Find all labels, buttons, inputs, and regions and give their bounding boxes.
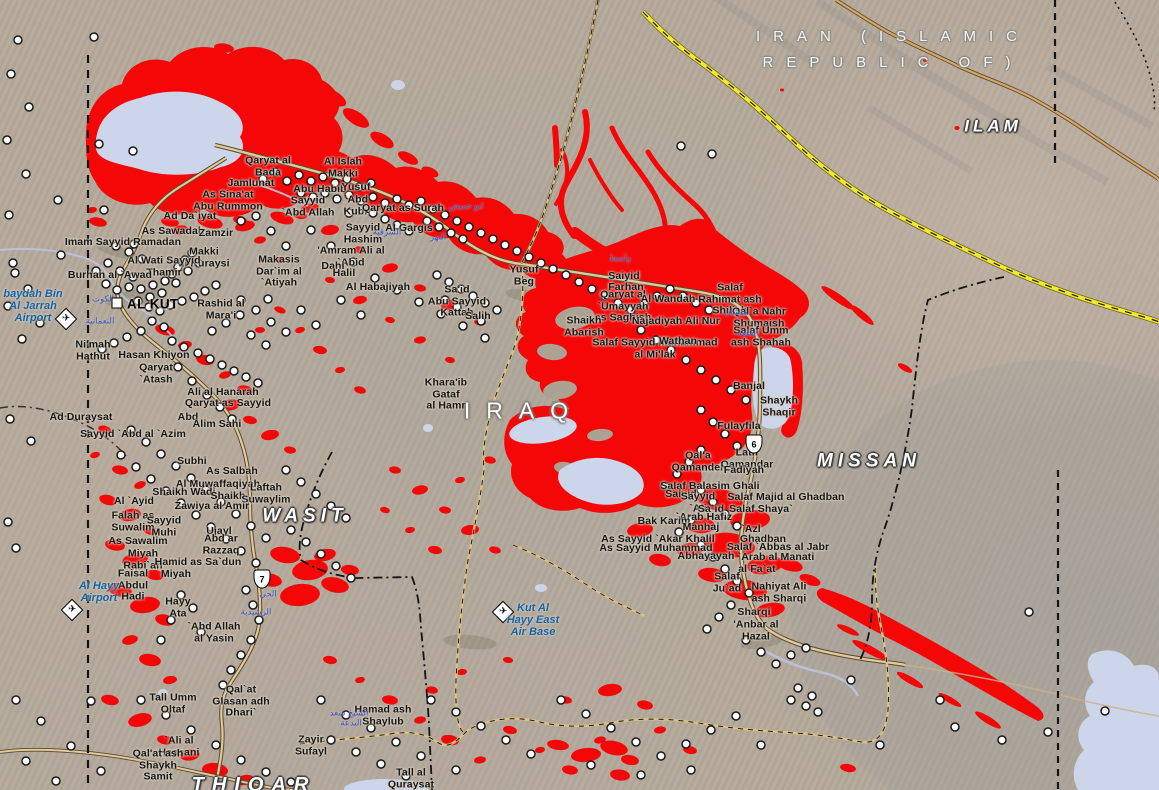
flood-patch — [396, 148, 420, 167]
village-point[interactable] — [682, 740, 690, 748]
settlement-label: Salaf Sayyid Muhammad al Mi'lak — [592, 337, 717, 360]
village-point[interactable] — [1025, 608, 1033, 616]
flood-patch — [88, 216, 107, 229]
village-point[interactable] — [237, 217, 245, 225]
flood-patch — [294, 326, 305, 334]
flood-patch — [502, 725, 517, 736]
village-point[interactable] — [137, 285, 145, 293]
village-point[interactable] — [453, 217, 461, 225]
village-point[interactable] — [787, 696, 795, 704]
country-label-iraq: IRAQ — [464, 398, 584, 423]
flood-patch — [955, 126, 960, 130]
flood-patch — [561, 764, 578, 775]
settlement-label: Fadiyah — [724, 465, 764, 477]
flood-patch — [780, 89, 784, 92]
settlement-label: Rashid al Mara'i — [197, 298, 245, 321]
country-label-iran-line2: REPUBLIC OF) — [762, 55, 1023, 72]
village-point[interactable] — [477, 229, 485, 237]
village-point[interactable] — [435, 223, 443, 231]
village-point[interactable] — [459, 235, 467, 243]
village-point[interactable] — [312, 321, 320, 329]
settlement-label: Imam Sayyid Ramadan — [65, 237, 181, 249]
village-point[interactable] — [264, 295, 272, 303]
flood-patch — [483, 456, 496, 465]
village-point[interactable] — [501, 241, 509, 249]
village-point[interactable] — [415, 298, 423, 306]
settlement-label: Sayyid `Abd al `Azim — [80, 429, 186, 441]
village-point[interactable] — [22, 757, 30, 765]
alkut-city-marker[interactable] — [112, 298, 123, 309]
village-point[interactable] — [772, 660, 780, 668]
village-point[interactable] — [575, 278, 583, 286]
village-point[interactable] — [557, 696, 565, 704]
village-point[interactable] — [757, 741, 765, 749]
flood-patch — [848, 303, 875, 328]
region-label-ilam: ILAM — [964, 118, 1022, 137]
flood-patch — [340, 104, 372, 131]
flood-patch — [535, 746, 546, 754]
flood-patch — [405, 526, 416, 534]
airplane-glyph: ✈ — [62, 314, 70, 324]
settlement-label: Ni'mah Hathut — [75, 339, 110, 362]
village-point[interactable] — [267, 227, 275, 235]
country-label-iran-line1: IRAN (ISLAMIC — [756, 29, 1030, 46]
flood-patch — [414, 336, 427, 345]
village-point[interactable] — [317, 550, 325, 558]
alkut-city-label: AL KUT — [127, 297, 179, 312]
village-point[interactable] — [357, 311, 365, 319]
settlement-label: Burhan al `Awad — [68, 270, 152, 282]
village-point[interactable] — [113, 286, 121, 294]
flood-patch — [354, 676, 365, 684]
settlement-label: Ad Duraysat — [50, 412, 113, 424]
arabic-label: النعمانية — [86, 316, 115, 325]
settlement-label: Qal'at ash Shaykh Samit — [133, 749, 184, 784]
flood-patch — [121, 634, 139, 647]
village-point[interactable] — [708, 150, 716, 158]
track-south — [456, 266, 523, 732]
flood-patch — [413, 716, 426, 725]
village-point[interactable] — [37, 717, 45, 725]
village-point[interactable] — [12, 696, 20, 704]
settlement-label: Subhi — [177, 456, 207, 468]
settlement-label: Wathan — [659, 336, 697, 348]
village-point[interactable] — [417, 752, 425, 760]
region-label-thiqar: THIQAR — [192, 774, 317, 790]
settlement-label: Miyah — [161, 569, 191, 581]
village-point[interactable] — [212, 741, 220, 749]
village-point[interactable] — [90, 33, 98, 41]
village-point[interactable] — [562, 271, 570, 279]
flood-patch — [636, 699, 653, 711]
village-point[interactable] — [513, 247, 521, 255]
village-point[interactable] — [262, 534, 270, 542]
village-point[interactable] — [137, 696, 145, 704]
settlement-label: `Arab al Manati — [738, 552, 815, 564]
boundary-corner-dotted — [1115, 2, 1155, 112]
settlement-label: Zayir Sufayl — [295, 734, 327, 757]
village-point[interactable] — [97, 767, 105, 775]
village-point[interactable] — [447, 229, 455, 237]
flood-patch — [242, 415, 257, 426]
flood-patch — [445, 356, 456, 364]
village-point[interactable] — [247, 522, 255, 530]
settlement-label: As Sina'at Abu Rummon — [193, 189, 263, 212]
settlement-label: 'Anbar al Hazal — [733, 619, 778, 642]
village-point[interactable] — [208, 327, 216, 335]
flood-patch — [352, 295, 367, 305]
village-point[interactable] — [297, 306, 305, 314]
village-point[interactable] — [427, 696, 435, 704]
village-point[interactable] — [247, 331, 255, 339]
flood-patch — [570, 746, 601, 763]
flood-patch — [654, 726, 667, 735]
arabic-label: واسط — [609, 253, 631, 262]
settlement-label: Sayyid `Abd Allah — [281, 195, 334, 218]
settlement-label: Al `Ayid — [114, 496, 154, 508]
settlement-label: Shaykh Shaqir — [760, 395, 798, 418]
flood-patch — [839, 763, 856, 774]
village-point[interactable] — [687, 766, 695, 774]
village-point[interactable] — [206, 355, 214, 363]
village-point[interactable] — [998, 736, 1006, 744]
settlement-label: Salaf Majid al Ghadban — [727, 492, 844, 504]
village-point[interactable] — [129, 147, 137, 155]
flood-patch — [379, 506, 390, 514]
arabic-label: الشرقية — [373, 227, 401, 236]
village-point[interactable] — [312, 490, 320, 498]
settlement-label: Abd ar Razzaq — [203, 533, 240, 556]
village-point[interactable] — [237, 756, 245, 764]
village-point[interactable] — [160, 323, 168, 331]
flood-patch — [284, 446, 297, 455]
village-point[interactable] — [794, 684, 802, 692]
village-point[interactable] — [187, 726, 195, 734]
village-point[interactable] — [123, 333, 131, 341]
village-point[interactable] — [262, 341, 270, 349]
flood-patch — [503, 656, 514, 663]
village-point[interactable] — [242, 373, 250, 381]
flood-patch — [414, 284, 427, 293]
village-point[interactable] — [157, 636, 165, 644]
airport-label: Kut Al Hayy East Air Base — [507, 602, 560, 638]
village-point[interactable] — [607, 724, 615, 732]
flood-patch — [368, 128, 397, 151]
village-point[interactable] — [157, 450, 165, 458]
arabic-label: ابو حميض — [449, 201, 484, 210]
settlement-label: Hamid as Sa`dun — [155, 557, 242, 569]
flood-patch — [411, 484, 429, 496]
arabic-label: الحي — [259, 589, 277, 598]
village-point[interactable] — [110, 339, 118, 347]
flood-patch — [597, 682, 622, 697]
settlement-label: Shaikh Abarish — [564, 315, 604, 338]
village-point[interactable] — [188, 377, 196, 385]
settlement-label: Makasis Dar`im al `Atiyah — [256, 255, 302, 290]
village-point[interactable] — [168, 337, 176, 345]
settlement-label: Zawiya al Amir — [175, 501, 250, 513]
village-point[interactable] — [6, 415, 14, 423]
flood-patch — [320, 575, 351, 595]
settlement-label: Salih — [465, 311, 491, 323]
village-point[interactable] — [707, 726, 715, 734]
village-point[interactable] — [742, 396, 750, 404]
village-point[interactable] — [677, 142, 685, 150]
settlement-label: al Fa`at — [738, 564, 776, 576]
village-point[interactable] — [452, 766, 460, 774]
village-point[interactable] — [493, 306, 501, 314]
village-point[interactable] — [317, 696, 325, 704]
settlement-label: Tall al Quraysat — [388, 767, 434, 790]
flood-patch — [439, 506, 452, 515]
village-point[interactable] — [332, 562, 340, 570]
village-point[interactable] — [14, 36, 22, 44]
village-point[interactable] — [54, 196, 62, 204]
village-point[interactable] — [814, 708, 822, 716]
village-point[interactable] — [297, 478, 305, 486]
flood-patch — [100, 693, 120, 707]
flood-patch — [427, 545, 442, 555]
village-point[interactable] — [11, 269, 19, 277]
settlement-label: Tall Umm Oltaf — [149, 692, 196, 715]
village-point[interactable] — [247, 636, 255, 644]
village-point[interactable] — [582, 710, 590, 718]
settlement-label: Hayy Ata — [165, 596, 191, 619]
settlement-label: Qaryat al Bada — [245, 155, 291, 178]
settlement-label: As Sawalim — [108, 536, 167, 548]
settlement-label: Alim Sahi — [193, 419, 242, 431]
village-point[interactable] — [337, 296, 345, 304]
village-point[interactable] — [732, 712, 740, 720]
settlement-label: As Salbah — [206, 466, 258, 478]
village-point[interactable] — [302, 538, 310, 546]
arabic-label: البدعة — [340, 718, 362, 727]
village-point[interactable] — [132, 463, 140, 471]
village-point[interactable] — [657, 752, 665, 760]
village-point[interactable] — [237, 651, 245, 659]
flood-patch — [454, 476, 465, 484]
arabic-label: ميسان — [724, 307, 748, 316]
village-point[interactable] — [9, 259, 17, 267]
village-point[interactable] — [876, 741, 884, 749]
settlement-label: Faisal Abdul Hadi — [118, 569, 148, 604]
village-point[interactable] — [255, 616, 263, 624]
settlement-label: Khara'ib Gataf al Hamr — [425, 378, 467, 413]
village-point[interactable] — [194, 349, 202, 357]
village-point[interactable] — [587, 761, 595, 769]
village-point[interactable] — [230, 367, 238, 375]
flood-patch — [609, 768, 630, 782]
settlement-label: Manhaj — [683, 522, 720, 534]
airport-label: baydah Bin Al Jarrah Airport — [3, 288, 62, 324]
village-point[interactable] — [1101, 707, 1109, 715]
settlement-label: Salaf Shaya` — [729, 504, 793, 516]
village-point[interactable] — [502, 736, 510, 744]
flood-patch — [388, 466, 401, 475]
village-point[interactable] — [27, 437, 35, 445]
village-point[interactable] — [57, 251, 65, 259]
village-point[interactable] — [117, 451, 125, 459]
village-point[interactable] — [227, 666, 235, 674]
flood-patch — [546, 739, 569, 752]
settlement-label: Shaikh Wadi — [152, 487, 215, 499]
village-point[interactable] — [697, 366, 705, 374]
village-point[interactable] — [252, 212, 260, 220]
airplane-glyph: ✈ — [68, 605, 76, 615]
village-point[interactable] — [666, 285, 674, 293]
region-label-missan: MISSAN — [817, 452, 921, 473]
village-point[interactable] — [7, 70, 15, 78]
settlement-label: Nahiyat Ali ash Sharqi — [752, 581, 807, 604]
settlement-label: Najadiyah Ali Nur — [632, 316, 720, 328]
village-point[interactable] — [802, 702, 810, 710]
village-point[interactable] — [137, 327, 145, 335]
settlement-label: Hasan Khiyon — [118, 350, 189, 362]
village-point[interactable] — [527, 750, 535, 758]
village-point[interactable] — [100, 206, 108, 214]
village-point[interactable] — [951, 723, 959, 731]
flood-patch — [620, 754, 639, 767]
village-point[interactable] — [632, 738, 640, 746]
flood-patch — [253, 236, 266, 245]
village-point[interactable] — [733, 522, 741, 530]
village-point[interactable] — [727, 601, 735, 609]
village-point[interactable] — [282, 242, 290, 250]
settlement-label: Qaryat `Atash — [139, 362, 173, 385]
flood-patch — [460, 524, 479, 536]
settlement-label: Yusuf — [341, 182, 370, 194]
flood-patch — [255, 327, 265, 333]
village-point[interactable] — [218, 361, 226, 369]
flood-patch — [279, 582, 321, 608]
village-point[interactable] — [697, 406, 705, 414]
village-point[interactable] — [22, 170, 30, 178]
village-point[interactable] — [307, 226, 315, 234]
flood-patch — [457, 668, 468, 675]
village-point[interactable] — [295, 171, 303, 179]
village-point[interactable] — [95, 140, 103, 148]
village-point[interactable] — [477, 722, 485, 730]
village-point[interactable] — [465, 223, 473, 231]
village-point[interactable] — [252, 559, 260, 567]
settlement-label: Qal'a Qamander — [672, 450, 725, 473]
settlement-label: Ad Da`iyat — [164, 211, 217, 223]
village-point[interactable] — [712, 376, 720, 384]
airport-label: Al Hayy Airport — [79, 580, 119, 604]
village-point[interactable] — [525, 253, 533, 261]
village-point[interactable] — [787, 651, 795, 659]
village-point[interactable] — [5, 211, 13, 219]
arabic-label: النهر — [430, 232, 446, 241]
village-point[interactable] — [12, 544, 20, 552]
village-point[interactable] — [174, 363, 182, 371]
village-point[interactable] — [549, 265, 557, 273]
village-point[interactable] — [369, 193, 377, 201]
settlement-label: Banjal — [733, 381, 765, 393]
flood-patch — [138, 652, 162, 668]
village-point[interactable] — [87, 697, 95, 705]
flood-patch — [312, 345, 327, 355]
village-point[interactable] — [757, 648, 765, 656]
settlement-label: Fulayfila — [717, 421, 761, 433]
village-point[interactable] — [178, 297, 186, 305]
village-point[interactable] — [452, 708, 460, 716]
village-point[interactable] — [201, 287, 209, 295]
village-point[interactable] — [267, 318, 275, 326]
village-point[interactable] — [172, 279, 180, 287]
flood-patch — [322, 655, 337, 665]
settlement-label: Qal`at Glasan adh Dhari` — [212, 685, 270, 720]
village-point[interactable] — [377, 760, 385, 768]
village-point[interactable] — [481, 334, 489, 342]
village-point[interactable] — [433, 271, 441, 279]
village-point[interactable] — [709, 418, 717, 426]
region-label-wasit: WASIT — [262, 507, 347, 528]
flood-patch — [260, 429, 279, 442]
settlement-label: Halil — [333, 268, 356, 280]
village-point[interactable] — [125, 283, 133, 291]
village-point[interactable] — [1044, 728, 1052, 736]
village-point[interactable] — [703, 625, 711, 633]
village-point[interactable] — [25, 103, 33, 111]
settlement-label: Qaryat as Sayyid — [185, 398, 271, 410]
village-point[interactable] — [252, 306, 260, 314]
village-point[interactable] — [936, 696, 944, 704]
village-point[interactable] — [637, 771, 645, 779]
settlement-label: Al Wandah — [641, 294, 696, 306]
flood-patch — [111, 464, 128, 476]
settlement-label: `Abd Allah al Yasin — [187, 621, 240, 644]
village-point[interactable] — [147, 475, 155, 483]
village-point[interactable] — [212, 281, 220, 289]
village-point[interactable] — [352, 748, 360, 756]
village-point[interactable] — [242, 586, 250, 594]
settlement-label: Sharqi — [737, 607, 770, 619]
flood-patch — [488, 545, 501, 554]
village-point[interactable] — [715, 613, 723, 621]
village-point[interactable] — [148, 317, 156, 325]
flood-patch — [320, 224, 339, 236]
village-point[interactable] — [392, 738, 400, 746]
flood-map-canvas: Qaryat al BadaAl Islah MakkiJamlunatAbu … — [0, 0, 1159, 790]
village-point[interactable] — [4, 518, 12, 526]
village-point[interactable] — [808, 692, 816, 700]
settlement-label: Salaf Ju`ad — [713, 571, 742, 594]
village-point[interactable] — [847, 676, 855, 684]
village-point[interactable] — [104, 259, 112, 267]
flood-patch — [335, 366, 346, 374]
arabic-label: القلعة — [738, 328, 759, 337]
flood-patch — [273, 305, 286, 315]
village-point[interactable] — [18, 335, 26, 343]
village-point[interactable] — [52, 777, 60, 785]
village-point[interactable] — [282, 328, 290, 336]
village-point[interactable] — [802, 644, 810, 652]
village-point[interactable] — [489, 235, 497, 243]
flood-patch — [269, 545, 301, 566]
village-point[interactable] — [3, 136, 11, 144]
village-point[interactable] — [149, 281, 157, 289]
flood-patch — [897, 361, 914, 374]
settlement-label: Al Habajiyah — [346, 282, 410, 294]
village-point[interactable] — [347, 574, 355, 582]
village-point[interactable] — [459, 322, 467, 330]
flood-patch — [353, 385, 366, 395]
flood-patch — [384, 316, 395, 324]
village-point[interactable] — [282, 466, 290, 474]
village-point[interactable] — [67, 742, 75, 750]
village-point[interactable] — [327, 736, 335, 744]
